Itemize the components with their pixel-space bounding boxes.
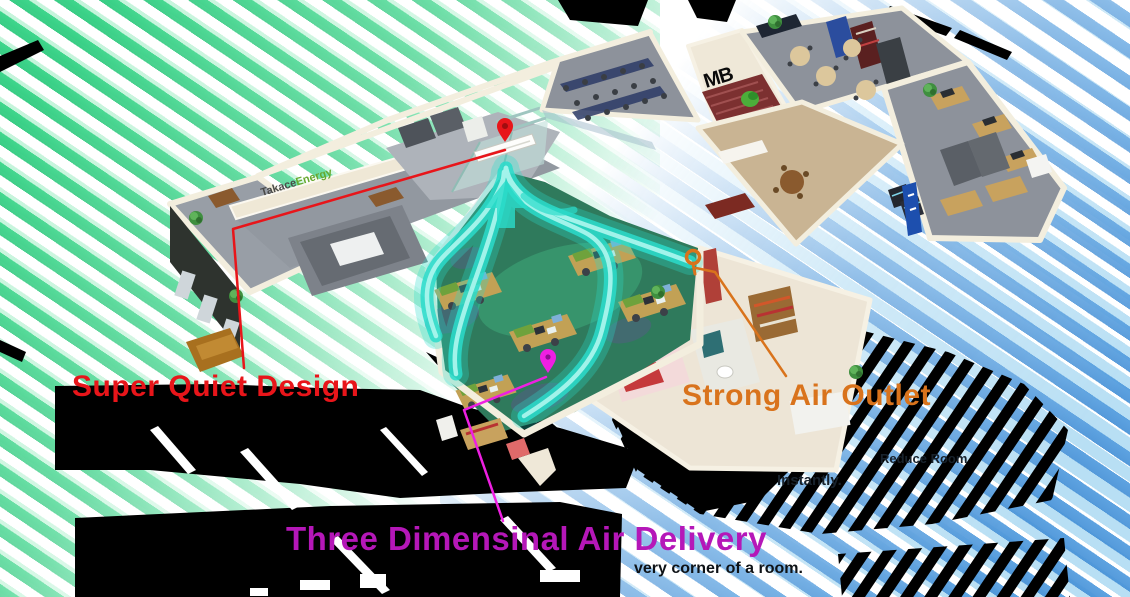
meeting-room xyxy=(542,33,698,150)
caption-fragment-instantly: Instantly. xyxy=(777,472,842,489)
caption-fragment-reduce-room: Reduce Room xyxy=(880,451,967,466)
reception xyxy=(698,102,922,244)
label-three-dimensinal-air-delivery: Three Dimensinal Air Delivery xyxy=(286,520,767,558)
label-strong-air-outlet: Strong Air Outlet xyxy=(682,379,931,413)
caption-fragment-every-corner: very corner of a room. xyxy=(634,560,803,578)
label-super-quiet-design: Super Quiet Design xyxy=(72,370,359,404)
promo-graphic: TakaceEnergy xyxy=(0,0,1130,597)
floorplan-illustration: TakaceEnergy xyxy=(0,0,1130,597)
